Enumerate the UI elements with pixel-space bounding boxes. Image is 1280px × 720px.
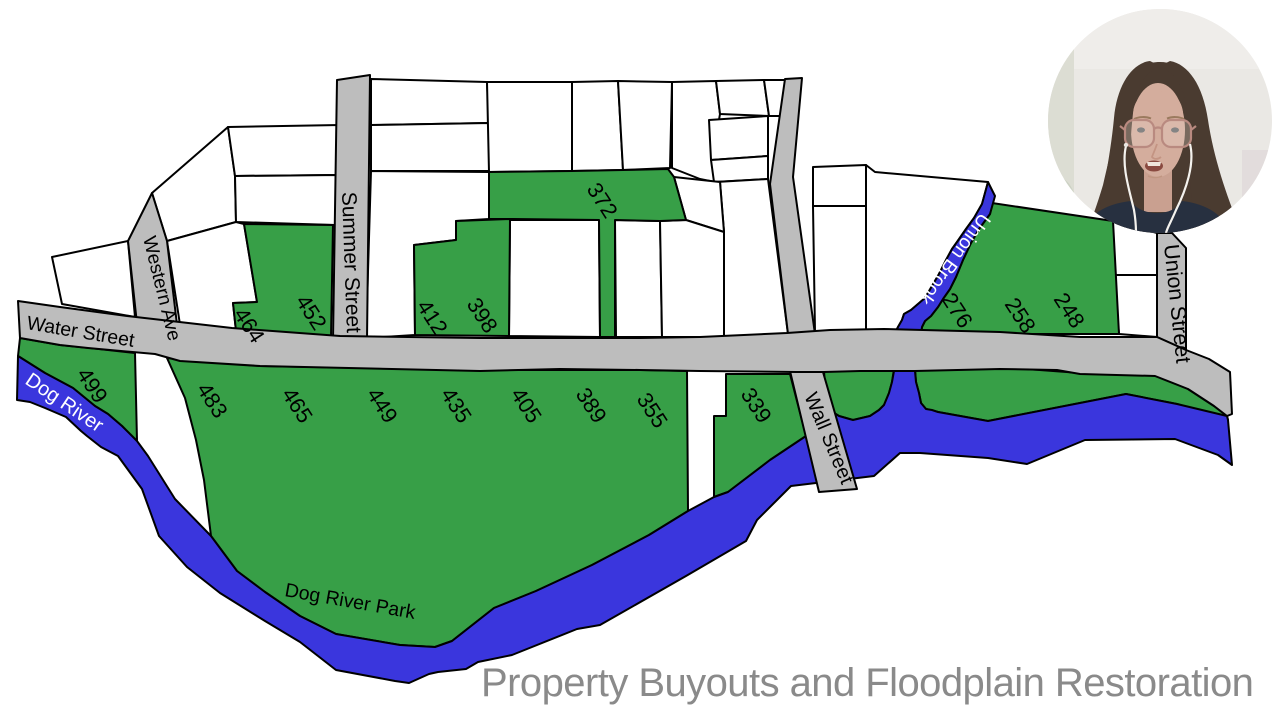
svg-text:Property Buyouts and Floodplai: Property Buyouts and Floodplain Restorat…	[481, 661, 1253, 705]
